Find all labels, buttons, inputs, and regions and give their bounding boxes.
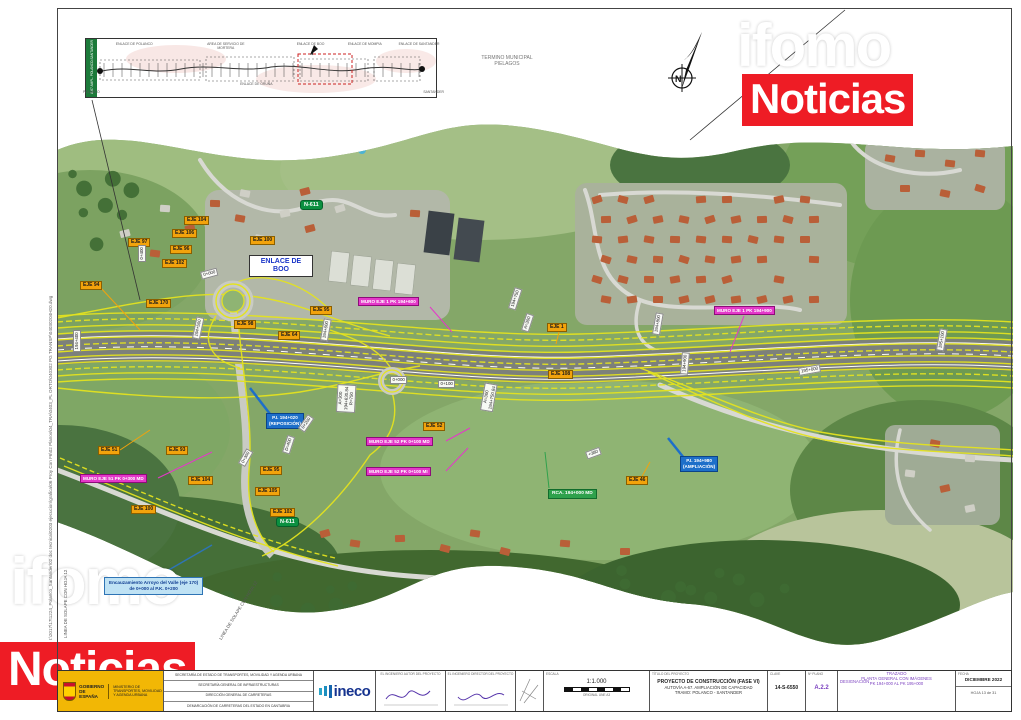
station-label: +380	[585, 447, 602, 459]
axis-label: EJE 102	[162, 259, 187, 268]
axis-label: EJE 98	[234, 320, 256, 329]
inset-enlace-label: ENLACE DE MOMPIA	[342, 43, 388, 47]
axis-label: EJE 95	[260, 466, 282, 475]
station-label: 0+000	[200, 268, 219, 280]
inset-enlace-label: AREA DE SERVICIO DE MORTERA	[203, 43, 249, 51]
project-title-box: TÍTULO DEL PROYECTO PROYECTO DE CONSTRUC…	[650, 671, 768, 711]
spain-coat-of-arms-icon	[63, 682, 76, 701]
axis-label: EJE 100	[250, 236, 275, 245]
rca-label: RCA. 194+000 MD	[548, 489, 597, 499]
axis-label: EJE 52	[423, 422, 445, 431]
inset-diagram	[86, 39, 436, 97]
scale-box: ESCALA 1:1.000 ORIGINAL UNE A3	[544, 671, 650, 711]
signature-box-author: EL INGENIERO AUTOR DEL PROYECTO	[376, 671, 446, 711]
gov-ministry: MINISTERIO DE TRANSPORTES, MOVILIDAD Y A…	[113, 685, 163, 698]
curve-data-label: A=300194+630.84R=750	[336, 384, 356, 413]
plano-box: Nº PLANO A.2.2	[806, 671, 838, 711]
wall-label: MURO EJE 1 PK 194+900	[714, 306, 775, 315]
project-title-line: TRAMO: POLANCO - SANTANDER	[650, 690, 767, 695]
road-shield: N-611	[300, 200, 323, 210]
date-header: FECHA	[958, 672, 969, 676]
scale-value: 1:1.000	[544, 679, 649, 685]
inset-enlace-label: ENLACE DE BOO	[288, 43, 334, 47]
wall-label: MURO EJE 52 PK 0+100 MD	[366, 437, 433, 446]
designation-header: DESIGNACIÓN	[840, 679, 869, 684]
project-title-header: TÍTULO DEL PROYECTO	[652, 672, 689, 676]
title-block: GOBIERNODE ESPAÑA MINISTERIO DE TRANSPOR…	[57, 670, 1012, 712]
axis-label: EJE 104	[188, 476, 213, 485]
clave-value: 14-S-6550	[768, 685, 805, 691]
station-label: 194+600	[320, 318, 331, 341]
date-value: DICIEMBRE 2022	[956, 677, 1011, 687]
date-box: FECHA DICIEMBRE 2022 HOJA 13 de 31	[956, 671, 1011, 711]
axis-label: EJE 51	[98, 446, 120, 455]
org-line: SECRETARÍA DE ESTADO DE TRANSPORTES, MOV…	[164, 671, 313, 681]
axis-label: EJE 1	[547, 323, 567, 332]
mini-sketch-box	[516, 671, 544, 711]
station-label: 194+500	[192, 316, 204, 339]
designation-box: DESIGNACIÓN TRAZADOPLANTA GENERAL CON IM…	[838, 671, 956, 711]
road-shield: N-611	[276, 517, 299, 527]
inset-enlace-label: ENLACE DE POLANCO	[111, 43, 157, 47]
scale-header: ESCALA	[546, 672, 559, 676]
axis-label: EJE 170	[146, 299, 171, 308]
ineco-bar-icon	[324, 686, 327, 696]
signature-icon	[376, 679, 446, 709]
station-label: 195+000	[798, 364, 821, 375]
org-lines: SECRETARÍA DE ESTADO DE TRANSPORTES, MOV…	[164, 671, 314, 711]
scale-note: ORIGINAL UNE A3	[544, 693, 649, 697]
curve-data-label: A=300194+750.84	[480, 382, 498, 412]
wall-label: MURO EJE 51 PK 0+300 MD	[80, 474, 147, 483]
station-label: 0+300	[238, 448, 253, 467]
wall-label: MURO EJE 1 PK 194+600	[358, 297, 419, 306]
scale-bar-icon	[564, 687, 630, 692]
ineco-bar-icon	[329, 685, 332, 698]
ineco-logo: ineco	[314, 671, 376, 711]
org-line: DEMARCACIÓN DE CARRETERAS DEL ESTADO EN …	[164, 702, 313, 711]
signature-header: EL INGENIERO AUTOR DEL PROYECTO	[376, 672, 445, 676]
enlace-boo-label: ENLACE DE BOO	[249, 255, 313, 277]
axis-label: EJE 106	[172, 229, 197, 238]
axis-label: EJE 94	[80, 281, 102, 290]
station-label: 195+100	[936, 328, 947, 351]
file-path-note: I:\2017\17t1224_Polanco_Santander\02 doc…	[48, 296, 53, 640]
station-label: 194+400	[73, 330, 81, 352]
axis-label: EJE 105	[255, 487, 280, 496]
map-label-layer: ENLACE DE BOO EJE 104EJE 106EJE 97EJE 96…	[0, 0, 1021, 720]
axis-label: EJE 96	[170, 245, 192, 254]
station-label: 194+800	[652, 312, 663, 335]
clave-header: CLAVE	[770, 672, 780, 676]
gov-logo-box: GOBIERNODE ESPAÑA MINISTERIO DE TRANSPOR…	[58, 671, 164, 711]
station-label: 0+000	[390, 376, 407, 384]
ineco-wordmark: ineco	[334, 683, 371, 700]
overlap-note-left: LINEA DE SOLAPE CON HOJA 12	[63, 570, 68, 638]
station-label: D=400	[282, 435, 295, 455]
gov-name: GOBIERNODE ESPAÑA	[79, 684, 109, 699]
axis-label: EJE 108	[548, 370, 573, 379]
axis-label: EJE 93	[166, 446, 188, 455]
inset-end-label: SANTANDER	[398, 91, 444, 95]
axis-label: EJE 95	[310, 306, 332, 315]
station-label: 194+750	[508, 287, 522, 310]
wall-label: MURO EJE 52 PK 0+100 MI	[366, 467, 431, 476]
signature-icon	[446, 679, 516, 709]
mini-sketch-icon	[516, 671, 544, 711]
location-strip-inset: A-67 AMPL. POLANCO-SANTANDER POLANCO SAN…	[85, 38, 437, 98]
plan-sheet: N ifomo Noticias ifomo Noticias ENLACE D…	[0, 0, 1021, 720]
axis-label: EJE 64	[278, 331, 300, 340]
inset-enlace-label: ENLACE DE SANTANDER	[396, 43, 442, 47]
crossing-label: P.I. 194+980(AMPLIACIÓN)	[680, 456, 718, 472]
clave-box: CLAVE 14-S-6550	[768, 671, 806, 711]
signature-header: EL INGENIERO DIRECTOR DEL PROYECTO	[446, 672, 515, 676]
station-label: 194+900	[680, 352, 690, 375]
ineco-bar-icon	[319, 688, 322, 695]
org-line: SECRETARÍA GENERAL DE INFRAESTRUCTURAS	[164, 681, 313, 691]
org-line: DIRECCIÓN GENERAL DE CARRETERAS	[164, 692, 313, 702]
inset-enlace-label: ENLACE DE ORUÑA	[233, 83, 279, 87]
signature-box-director: EL INGENIERO DIRECTOR DEL PROYECTO	[446, 671, 516, 711]
sheet-number: HOJA 13 de 31	[956, 691, 1011, 695]
axis-label: EJE 46	[626, 476, 648, 485]
plano-header: Nº PLANO	[808, 672, 823, 676]
station-label: A=300	[521, 313, 534, 332]
station-label: 0+100	[438, 380, 455, 388]
inset-start-label: POLANCO	[83, 91, 129, 95]
axis-label: EJE 100	[131, 505, 156, 514]
channel-label: Encauzamiento Arroyo del Valle (eje 170)…	[104, 577, 203, 595]
plano-value: A.2.2	[806, 685, 837, 691]
station-label: 0+400	[138, 245, 146, 262]
axis-label: EJE 104	[184, 216, 209, 225]
axis-label: EJE 102	[270, 508, 295, 517]
